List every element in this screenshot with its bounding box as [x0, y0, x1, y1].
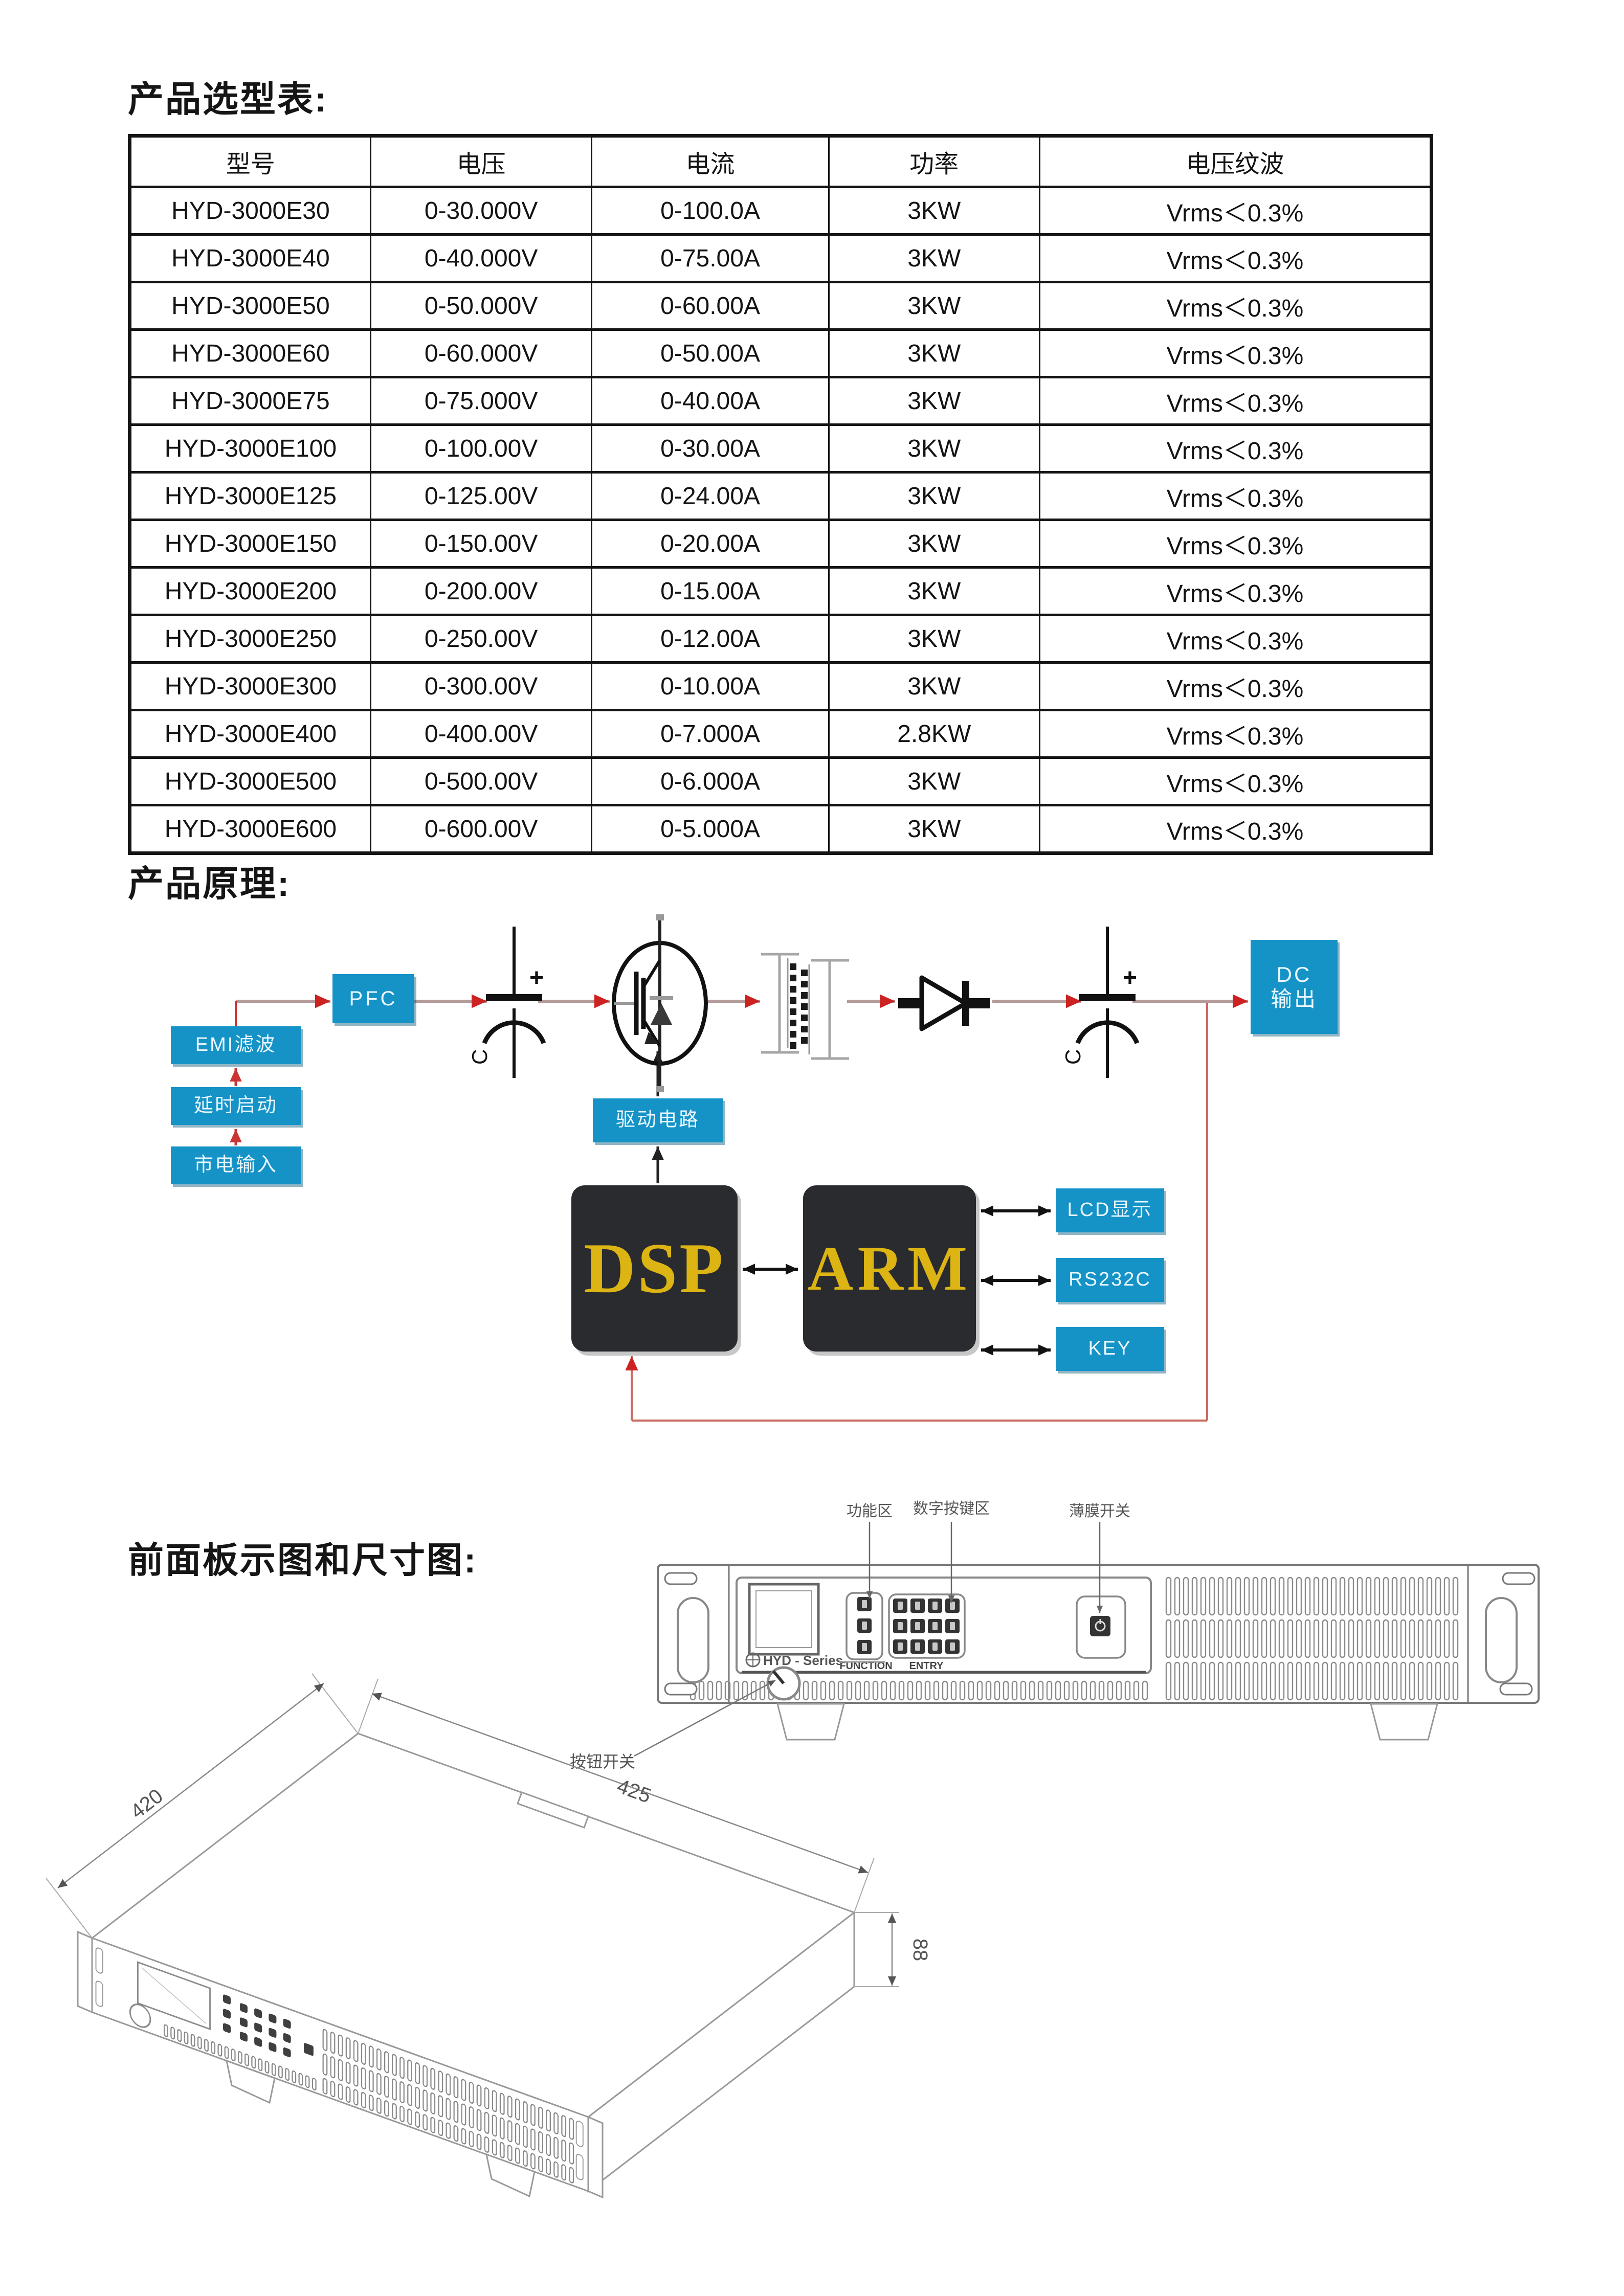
- arrowhead: [1233, 995, 1248, 1008]
- table-row: HYD-3000E4000-400.00V0-7.000A2.8KWVrms＜0…: [130, 710, 1432, 758]
- table-cell: Vrms＜0.3%: [1039, 187, 1431, 235]
- cap-label: C: [468, 1049, 492, 1065]
- table-row: HYD-3000E750-75.000V0-40.00A3KWVrms＜0.3%: [130, 377, 1432, 425]
- table-cell: Vrms＜0.3%: [1039, 377, 1431, 425]
- table-row: HYD-3000E300-30.000V0-100.0A3KWVrms＜0.3%: [130, 187, 1432, 235]
- table-cell: HYD-3000E150: [130, 520, 371, 568]
- table-cell: 0-600.00V: [370, 805, 592, 853]
- key-glyph: [898, 1622, 903, 1630]
- block-mains-input: 市电输入: [171, 1146, 301, 1184]
- foot: [1371, 1704, 1437, 1740]
- table-cell: HYD-3000E50: [130, 282, 371, 330]
- key-glyph: [862, 1622, 867, 1630]
- table-cell: 0-15.00A: [592, 568, 829, 615]
- table-cell: Vrms＜0.3%: [1039, 235, 1431, 282]
- col-header-current: 电流: [592, 136, 829, 187]
- table-row: HYD-3000E6000-600.00V0-5.000A3KWVrms＜0.3…: [130, 805, 1432, 853]
- table-row: HYD-3000E2500-250.00V0-12.00A3KWVrms＜0.3…: [130, 615, 1432, 663]
- table-cell: 3KW: [829, 758, 1039, 805]
- selection-table: 型号 电压 电流 功率 电压纹波 HYD-3000E300-30.000V0-1…: [128, 134, 1433, 855]
- table-cell: HYD-3000E500: [130, 758, 371, 805]
- key-glyph: [898, 1642, 903, 1651]
- col-header-power: 功率: [829, 136, 1039, 187]
- table-cell: 2.8KW: [829, 710, 1039, 758]
- table-cell: 0-150.00V: [370, 520, 592, 568]
- block-pfc: PFC: [332, 974, 414, 1023]
- dim-height-label: 88: [909, 1939, 931, 1962]
- table-cell: Vrms＜0.3%: [1039, 425, 1431, 472]
- table-cell: 0-400.00V: [370, 710, 592, 758]
- key-glyph: [950, 1642, 955, 1651]
- table-row: HYD-3000E1000-100.00V0-30.00A3KWVrms＜0.3…: [130, 425, 1432, 472]
- table-header-row: 型号 电压 电流 功率 电压纹波: [130, 136, 1432, 187]
- table-cell: 0-6.000A: [592, 758, 829, 805]
- key-glyph: [932, 1602, 938, 1610]
- table-row: HYD-3000E600-60.000V0-50.00A3KWVrms＜0.3%: [130, 330, 1432, 377]
- col-header-voltage: 电压: [370, 136, 592, 187]
- block-lcd-display: LCD显示: [1056, 1188, 1164, 1232]
- table-cell: 0-24.00A: [592, 472, 829, 520]
- table-row: HYD-3000E1500-150.00V0-20.00A3KWVrms＜0.3…: [130, 520, 1432, 568]
- dimension-drawing: 420 425 88: [20, 1657, 992, 2296]
- table-cell: 3KW: [829, 187, 1039, 235]
- diode-symbol: [898, 978, 990, 1029]
- table-cell: Vrms＜0.3%: [1039, 520, 1431, 568]
- table-cell: 3KW: [829, 235, 1039, 282]
- table-cell: HYD-3000E250: [130, 615, 371, 663]
- arrowhead: [858, 1865, 868, 1873]
- table-cell: 0-100.00V: [370, 425, 592, 472]
- key-glyph: [950, 1622, 955, 1630]
- table-cell: 0-75.000V: [370, 377, 592, 425]
- key-glyph: [862, 1600, 867, 1608]
- dc-output-line2: 输出: [1271, 987, 1318, 1011]
- table-cell: Vrms＜0.3%: [1039, 710, 1431, 758]
- table-cell: 3KW: [829, 282, 1039, 330]
- iso-ear-right: [588, 2117, 603, 2197]
- table-cell: 3KW: [829, 520, 1039, 568]
- mount-hole: [1503, 1573, 1534, 1584]
- table-cell: 3KW: [829, 472, 1039, 520]
- arrowhead: [981, 1275, 993, 1286]
- table-cell: 0-10.00A: [592, 663, 829, 710]
- rack-handle-right: [1486, 1598, 1517, 1682]
- col-header-model: 型号: [130, 136, 371, 187]
- key-glyph: [915, 1622, 920, 1630]
- block-drive-circuit: 驱动电路: [593, 1098, 723, 1142]
- table-cell: 0-60.00A: [592, 282, 829, 330]
- table-cell: Vrms＜0.3%: [1039, 663, 1431, 710]
- arrowhead: [888, 1914, 896, 1923]
- cap-plus: +: [1123, 964, 1137, 992]
- arrowhead: [880, 995, 895, 1008]
- table-row: HYD-3000E3000-300.00V0-10.00A3KWVrms＜0.3…: [130, 663, 1432, 710]
- arrowhead: [58, 1879, 68, 1888]
- table-cell: 0-60.000V: [370, 330, 592, 377]
- key-glyph: [932, 1622, 938, 1630]
- table-cell: Vrms＜0.3%: [1039, 472, 1431, 520]
- arrowhead: [230, 1129, 241, 1142]
- table-row: HYD-3000E5000-500.00V0-6.000A3KWVrms＜0.3…: [130, 758, 1432, 805]
- table-cell: 0-50.000V: [370, 282, 592, 330]
- arrowhead: [625, 1356, 638, 1370]
- dim-width-label: 425: [614, 1775, 654, 1808]
- block-dc-output: DC 输出: [1251, 940, 1338, 1034]
- arrowhead: [315, 995, 330, 1008]
- arrowhead: [1038, 1205, 1051, 1217]
- section-title-principle: 产品原理:: [128, 855, 291, 907]
- arrowhead: [981, 1205, 993, 1217]
- winding-right: [801, 970, 808, 1044]
- table-cell: Vrms＜0.3%: [1039, 282, 1431, 330]
- table-cell: HYD-3000E60: [130, 330, 371, 377]
- table-cell: 3KW: [829, 615, 1039, 663]
- table-cell: 3KW: [829, 568, 1039, 615]
- table-row: HYD-3000E400-40.000V0-75.00A3KWVrms＜0.3%: [130, 235, 1432, 282]
- arrowhead: [652, 1146, 663, 1160]
- table-cell: Vrms＜0.3%: [1039, 805, 1431, 853]
- dc-output-line1: DC: [1277, 962, 1312, 987]
- mount-hole: [665, 1573, 697, 1584]
- iso-function-keys: [223, 1994, 231, 2033]
- key-glyph: [898, 1602, 903, 1610]
- table-row: HYD-3000E500-50.000V0-60.00A3KWVrms＜0.3%: [130, 282, 1432, 330]
- page: 产品选型表: 型号 电压 电流 功率 电压纹波 HYD-3000E300-30.…: [0, 0, 1624, 2296]
- igbt-symbol: [614, 914, 706, 1092]
- table-cell: HYD-3000E125: [130, 472, 371, 520]
- table-cell: 0-50.00A: [592, 330, 829, 377]
- table-cell: HYD-3000E400: [130, 710, 371, 758]
- transformer-symbol: [761, 954, 849, 1059]
- cap-label: C: [1061, 1049, 1085, 1065]
- callout-function-area: 功能区: [847, 1503, 893, 1520]
- table-cell: 0-75.00A: [592, 235, 829, 282]
- table-cell: 0-100.0A: [592, 187, 829, 235]
- table-row: HYD-3000E1250-125.00V0-24.00A3KWVrms＜0.3…: [130, 472, 1432, 520]
- arrowhead: [888, 1976, 896, 1986]
- cap-plus: +: [529, 964, 544, 992]
- block-delay-start: 延时启动: [171, 1087, 301, 1125]
- arrowhead: [230, 1068, 241, 1082]
- table-cell: 0-5.000A: [592, 805, 829, 853]
- iso-ear-left: [78, 1932, 92, 2012]
- key-glyph: [915, 1642, 920, 1651]
- table-cell: 0-200.00V: [370, 568, 592, 615]
- table-cell: 0-40.000V: [370, 235, 592, 282]
- table-cell: 0-500.00V: [370, 758, 592, 805]
- table-cell: 0-125.00V: [370, 472, 592, 520]
- callout-membrane-switch: 薄膜开关: [1069, 1503, 1130, 1520]
- table-cell: 0-20.00A: [592, 520, 829, 568]
- table-cell: HYD-3000E75: [130, 377, 371, 425]
- table-cell: 0-30.000V: [370, 187, 592, 235]
- table-cell: Vrms＜0.3%: [1039, 330, 1431, 377]
- block-emi-filter: EMI滤波: [171, 1026, 301, 1064]
- arrowhead: [1038, 1275, 1051, 1286]
- table-cell: HYD-3000E200: [130, 568, 371, 615]
- table-cell: HYD-3000E100: [130, 425, 371, 472]
- arrowhead: [981, 1344, 993, 1356]
- key-glyph: [932, 1642, 938, 1651]
- mount-hole: [1500, 1683, 1532, 1695]
- function-keys[interactable]: [857, 1597, 872, 1654]
- section-title-selection: 产品选型表:: [128, 71, 328, 122]
- table-row: HYD-3000E2000-200.00V0-15.00A3KWVrms＜0.3…: [130, 568, 1432, 615]
- table-cell: Vrms＜0.3%: [1039, 615, 1431, 663]
- arrowhead: [472, 995, 487, 1008]
- lcd-screen-inner: [756, 1591, 812, 1648]
- callout-keypad-area: 数字按键区: [913, 1500, 990, 1517]
- key-glyph: [950, 1602, 955, 1610]
- table-cell: 0-30.00A: [592, 425, 829, 472]
- block-arm: ARM: [803, 1185, 976, 1352]
- key-glyph: [915, 1602, 920, 1610]
- table-cell: HYD-3000E600: [130, 805, 371, 853]
- table-cell: 0-40.00A: [592, 377, 829, 425]
- arrowhead: [786, 1264, 798, 1275]
- arrowhead: [1038, 1344, 1051, 1356]
- arrowhead: [372, 1693, 382, 1700]
- table-cell: Vrms＜0.3%: [1039, 758, 1431, 805]
- table-cell: HYD-3000E30: [130, 187, 371, 235]
- table-cell: 3KW: [829, 425, 1039, 472]
- dim-depth-label: 420: [126, 1785, 167, 1824]
- winding-left: [790, 963, 796, 1049]
- table-cell: 0-12.00A: [592, 615, 829, 663]
- block-dsp: DSP: [571, 1185, 738, 1352]
- table-cell: 0-300.00V: [370, 663, 592, 710]
- table-cell: Vrms＜0.3%: [1039, 568, 1431, 615]
- table-cell: 0-7.000A: [592, 710, 829, 758]
- col-header-ripple: 电压纹波: [1039, 136, 1431, 187]
- arrowhead: [1066, 995, 1081, 1008]
- table-cell: HYD-3000E40: [130, 235, 371, 282]
- table-cell: 3KW: [829, 663, 1039, 710]
- table-cell: HYD-3000E300: [130, 663, 371, 710]
- table-cell: 0-250.00V: [370, 615, 592, 663]
- table-cell: 3KW: [829, 805, 1039, 853]
- selection-table-wrapper: 型号 电压 电流 功率 电压纹波 HYD-3000E300-30.000V0-1…: [128, 134, 1433, 855]
- arrowhead: [743, 1264, 755, 1275]
- section-title-front-panel: 前面板示图和尺寸图:: [128, 1532, 477, 1583]
- arrowhead: [745, 995, 760, 1008]
- block-key: KEY: [1056, 1327, 1164, 1371]
- block-rs232c: RS232C: [1056, 1258, 1164, 1302]
- table-cell: 3KW: [829, 330, 1039, 377]
- arrowhead: [594, 995, 610, 1008]
- key-glyph: [862, 1643, 867, 1651]
- table-cell: 3KW: [829, 377, 1039, 425]
